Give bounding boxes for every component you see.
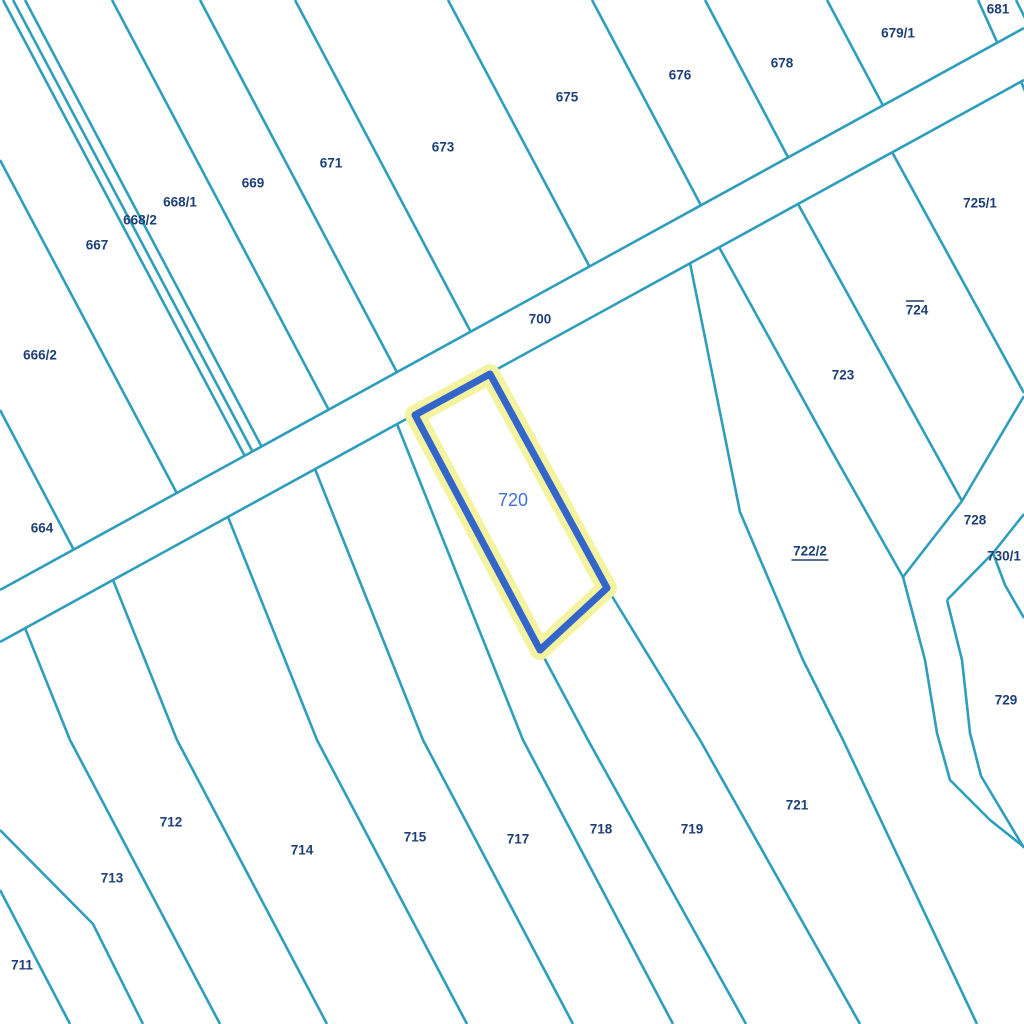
parcel-label-664[interactable]: 664 xyxy=(31,521,54,536)
parcel-label-715[interactable]: 715 xyxy=(404,830,427,845)
parcel-label-711[interactable]: 711 xyxy=(11,958,33,973)
parcel-label-671[interactable]: 671 xyxy=(320,156,343,171)
parcel-label-679-1[interactable]: 679/1 xyxy=(881,26,915,41)
parcel-label-724[interactable]: 724 xyxy=(906,303,929,318)
road-label-700[interactable]: 700 xyxy=(529,312,552,327)
cadastral-map: 664666/2667668/2668/16696716736756766786… xyxy=(0,0,1024,1024)
parcel-label-668-2[interactable]: 668/2 xyxy=(123,213,157,228)
parcel-label-667[interactable]: 667 xyxy=(86,238,109,253)
parcel-label-678[interactable]: 678 xyxy=(771,56,794,71)
parcel-label-721[interactable]: 721 xyxy=(786,798,809,813)
parcel-label-728[interactable]: 728 xyxy=(964,513,987,528)
parcel-label-714[interactable]: 714 xyxy=(291,843,314,858)
parcel-label-666-2[interactable]: 666/2 xyxy=(23,348,57,363)
parcel-label-713[interactable]: 713 xyxy=(101,871,124,886)
parcel-label-675[interactable]: 675 xyxy=(556,90,579,105)
parcel-label-673[interactable]: 673 xyxy=(432,140,455,155)
parcel-label-668-1[interactable]: 668/1 xyxy=(163,195,197,210)
parcel-label-669[interactable]: 669 xyxy=(242,176,265,191)
parcel-label-718[interactable]: 718 xyxy=(590,822,613,837)
parcel-label-729[interactable]: 729 xyxy=(995,693,1018,708)
parcel-label-723[interactable]: 723 xyxy=(832,368,855,383)
parcel-label-717[interactable]: 717 xyxy=(507,832,530,847)
parcel-label-712[interactable]: 712 xyxy=(160,815,183,830)
parcel-label-676[interactable]: 676 xyxy=(669,68,692,83)
parcel-label-725-1[interactable]: 725/1 xyxy=(963,196,997,211)
map-viewport: 664666/2667668/2668/16696716736756766786… xyxy=(0,0,1024,1024)
parcel-label-730-1[interactable]: 730/1 xyxy=(987,549,1021,564)
parcel-label-681[interactable]: 681 xyxy=(987,2,1010,17)
parcel-label-719[interactable]: 719 xyxy=(681,822,704,837)
highlighted-parcel-label-720[interactable]: 720 xyxy=(498,490,528,510)
parcel-label-722-2[interactable]: 722/2 xyxy=(793,544,827,559)
